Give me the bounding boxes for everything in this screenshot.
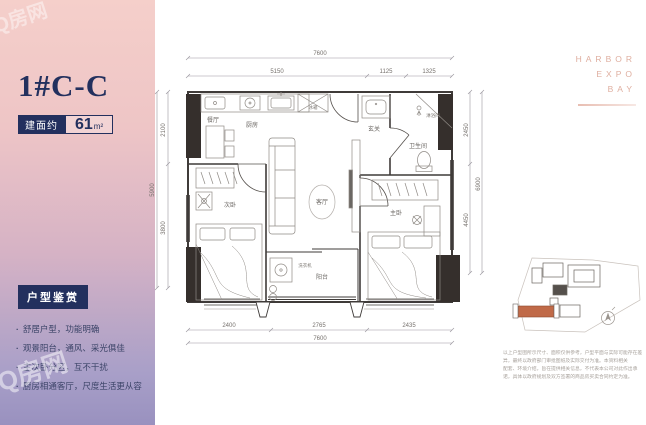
dim-top-total: 7600 [313,51,327,57]
label-washer: 洗衣机 [298,262,312,269]
dim-bottom-seg2: 2765 [312,323,326,329]
site-plan [513,258,640,332]
highlighted-building [518,306,554,317]
label-entry: 玄关 [368,125,380,133]
dim-bottom-seg3: 2435 [402,323,416,329]
dim-left-seg1: 2100 [161,123,167,137]
dim-right-seg2: 4450 [464,213,470,227]
disclaimer-line1: 以上户型图所示尺寸、面积仅供参考，户型平面与实际可能存在差异，最终以政府部门审批… [503,349,644,365]
dim-bottom-total: 7600 [313,336,327,342]
label-bedroom-left: 次卧 [224,201,236,209]
dim-top-seg1: 5150 [270,69,284,75]
label-living: 客厅 [316,198,328,206]
dim-top-seg2: 1125 [380,69,394,75]
disclaimer: 以上户型图所示尺寸、面积仅供参考，户型平面与实际可能存在差异，最终以政府部门审批… [503,349,644,381]
dim-right-total: 6900 [476,177,482,191]
label-bathroom: 卫生间 [409,142,427,150]
dim-top-seg3: 1325 [422,69,436,75]
label-balcony: 阳台 [316,273,328,281]
dim-right-seg1: 2450 [464,123,470,137]
disclaimer-line2: 配套、环境介绍，旨在提供相关信息，不代表本公司对此作出承诺，具体以政府规划及双方… [503,365,644,381]
label-fridge: 冰箱 [309,104,318,111]
label-shower: 淋浴间 [426,112,440,119]
balcony-pillars [204,302,434,317]
label-dining: 餐厅 [207,116,219,124]
label-kitchen: 厨房 [246,121,258,129]
dim-left-total: 5900 [150,183,156,197]
label-bedroom-right: 主卧 [390,209,402,217]
dim-left-seg2: 3800 [161,221,167,235]
dim-bottom-seg1: 2400 [222,323,236,329]
